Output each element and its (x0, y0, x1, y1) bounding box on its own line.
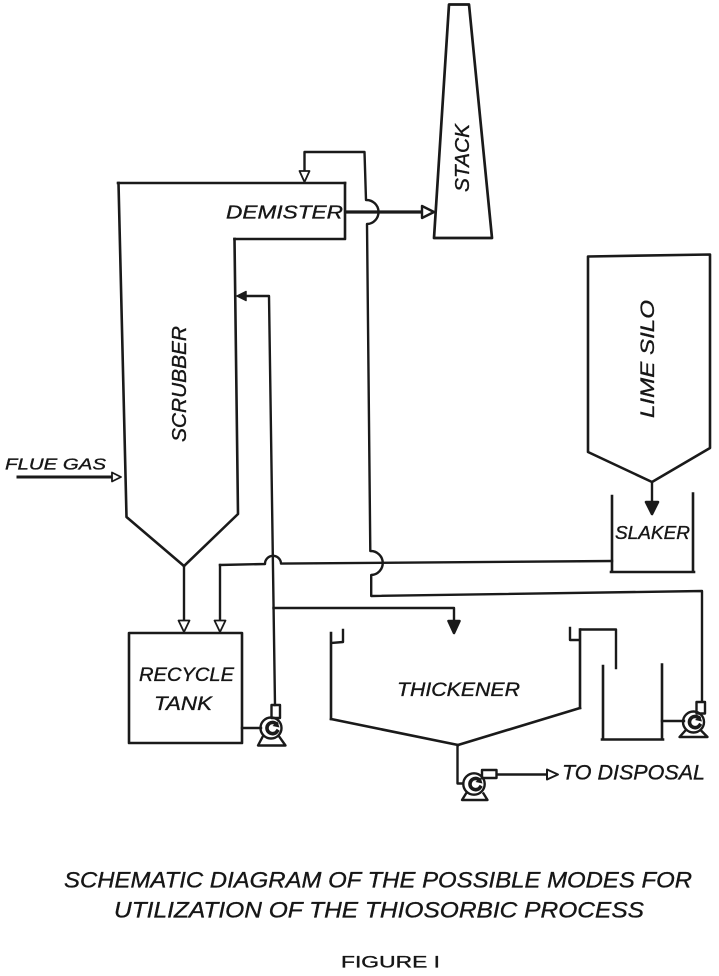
svg-text:FIGURE I: FIGURE I (341, 953, 440, 972)
svg-text:FLUE GAS: FLUE GAS (5, 457, 106, 474)
svg-text:SLAKER: SLAKER (615, 522, 690, 543)
svg-text:RECYCLE: RECYCLE (139, 665, 234, 686)
svg-text:THICKENER: THICKENER (397, 680, 520, 701)
svg-text:UTILIZATION OF THE THIOSORBIC: UTILIZATION OF THE THIOSORBIC PROCESS (114, 898, 644, 923)
svg-text:TANK: TANK (154, 694, 214, 715)
svg-text:DEMISTER: DEMISTER (226, 202, 343, 223)
svg-text:SCHEMATIC DIAGRAM OF THE POSSI: SCHEMATIC DIAGRAM OF THE POSSIBLE MODES … (64, 868, 692, 893)
svg-text:STACK: STACK (452, 122, 474, 192)
svg-text:TO DISPOSAL: TO DISPOSAL (562, 762, 705, 785)
svg-text:SCRUBBER: SCRUBBER (169, 326, 191, 442)
svg-text:LIME SILO: LIME SILO (637, 300, 659, 418)
